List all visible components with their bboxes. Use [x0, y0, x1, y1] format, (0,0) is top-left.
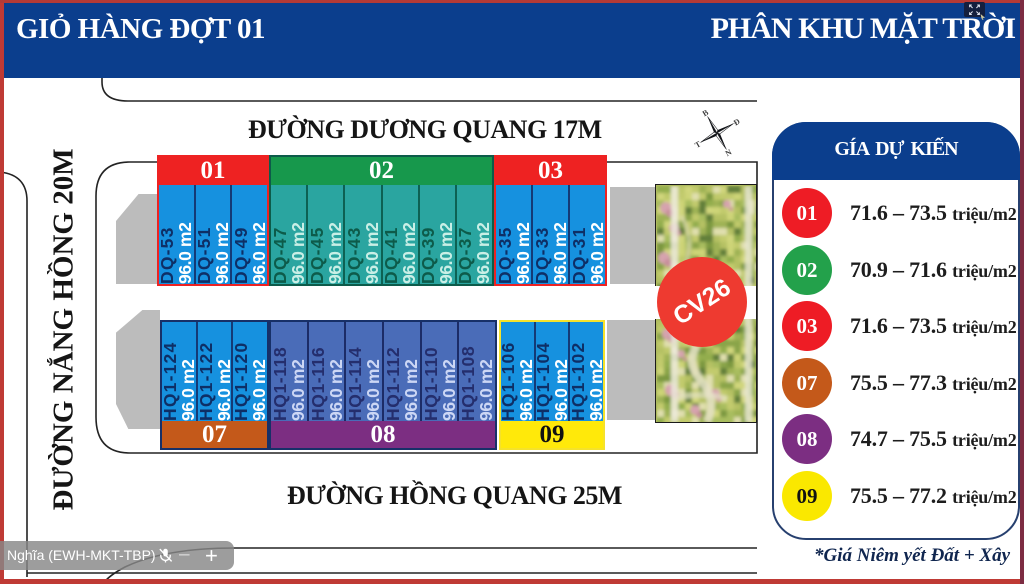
svg-text:B: B	[701, 108, 711, 119]
svg-text:N: N	[724, 147, 734, 158]
svg-text:T: T	[693, 139, 703, 150]
svg-text:Đ: Đ	[732, 117, 742, 128]
